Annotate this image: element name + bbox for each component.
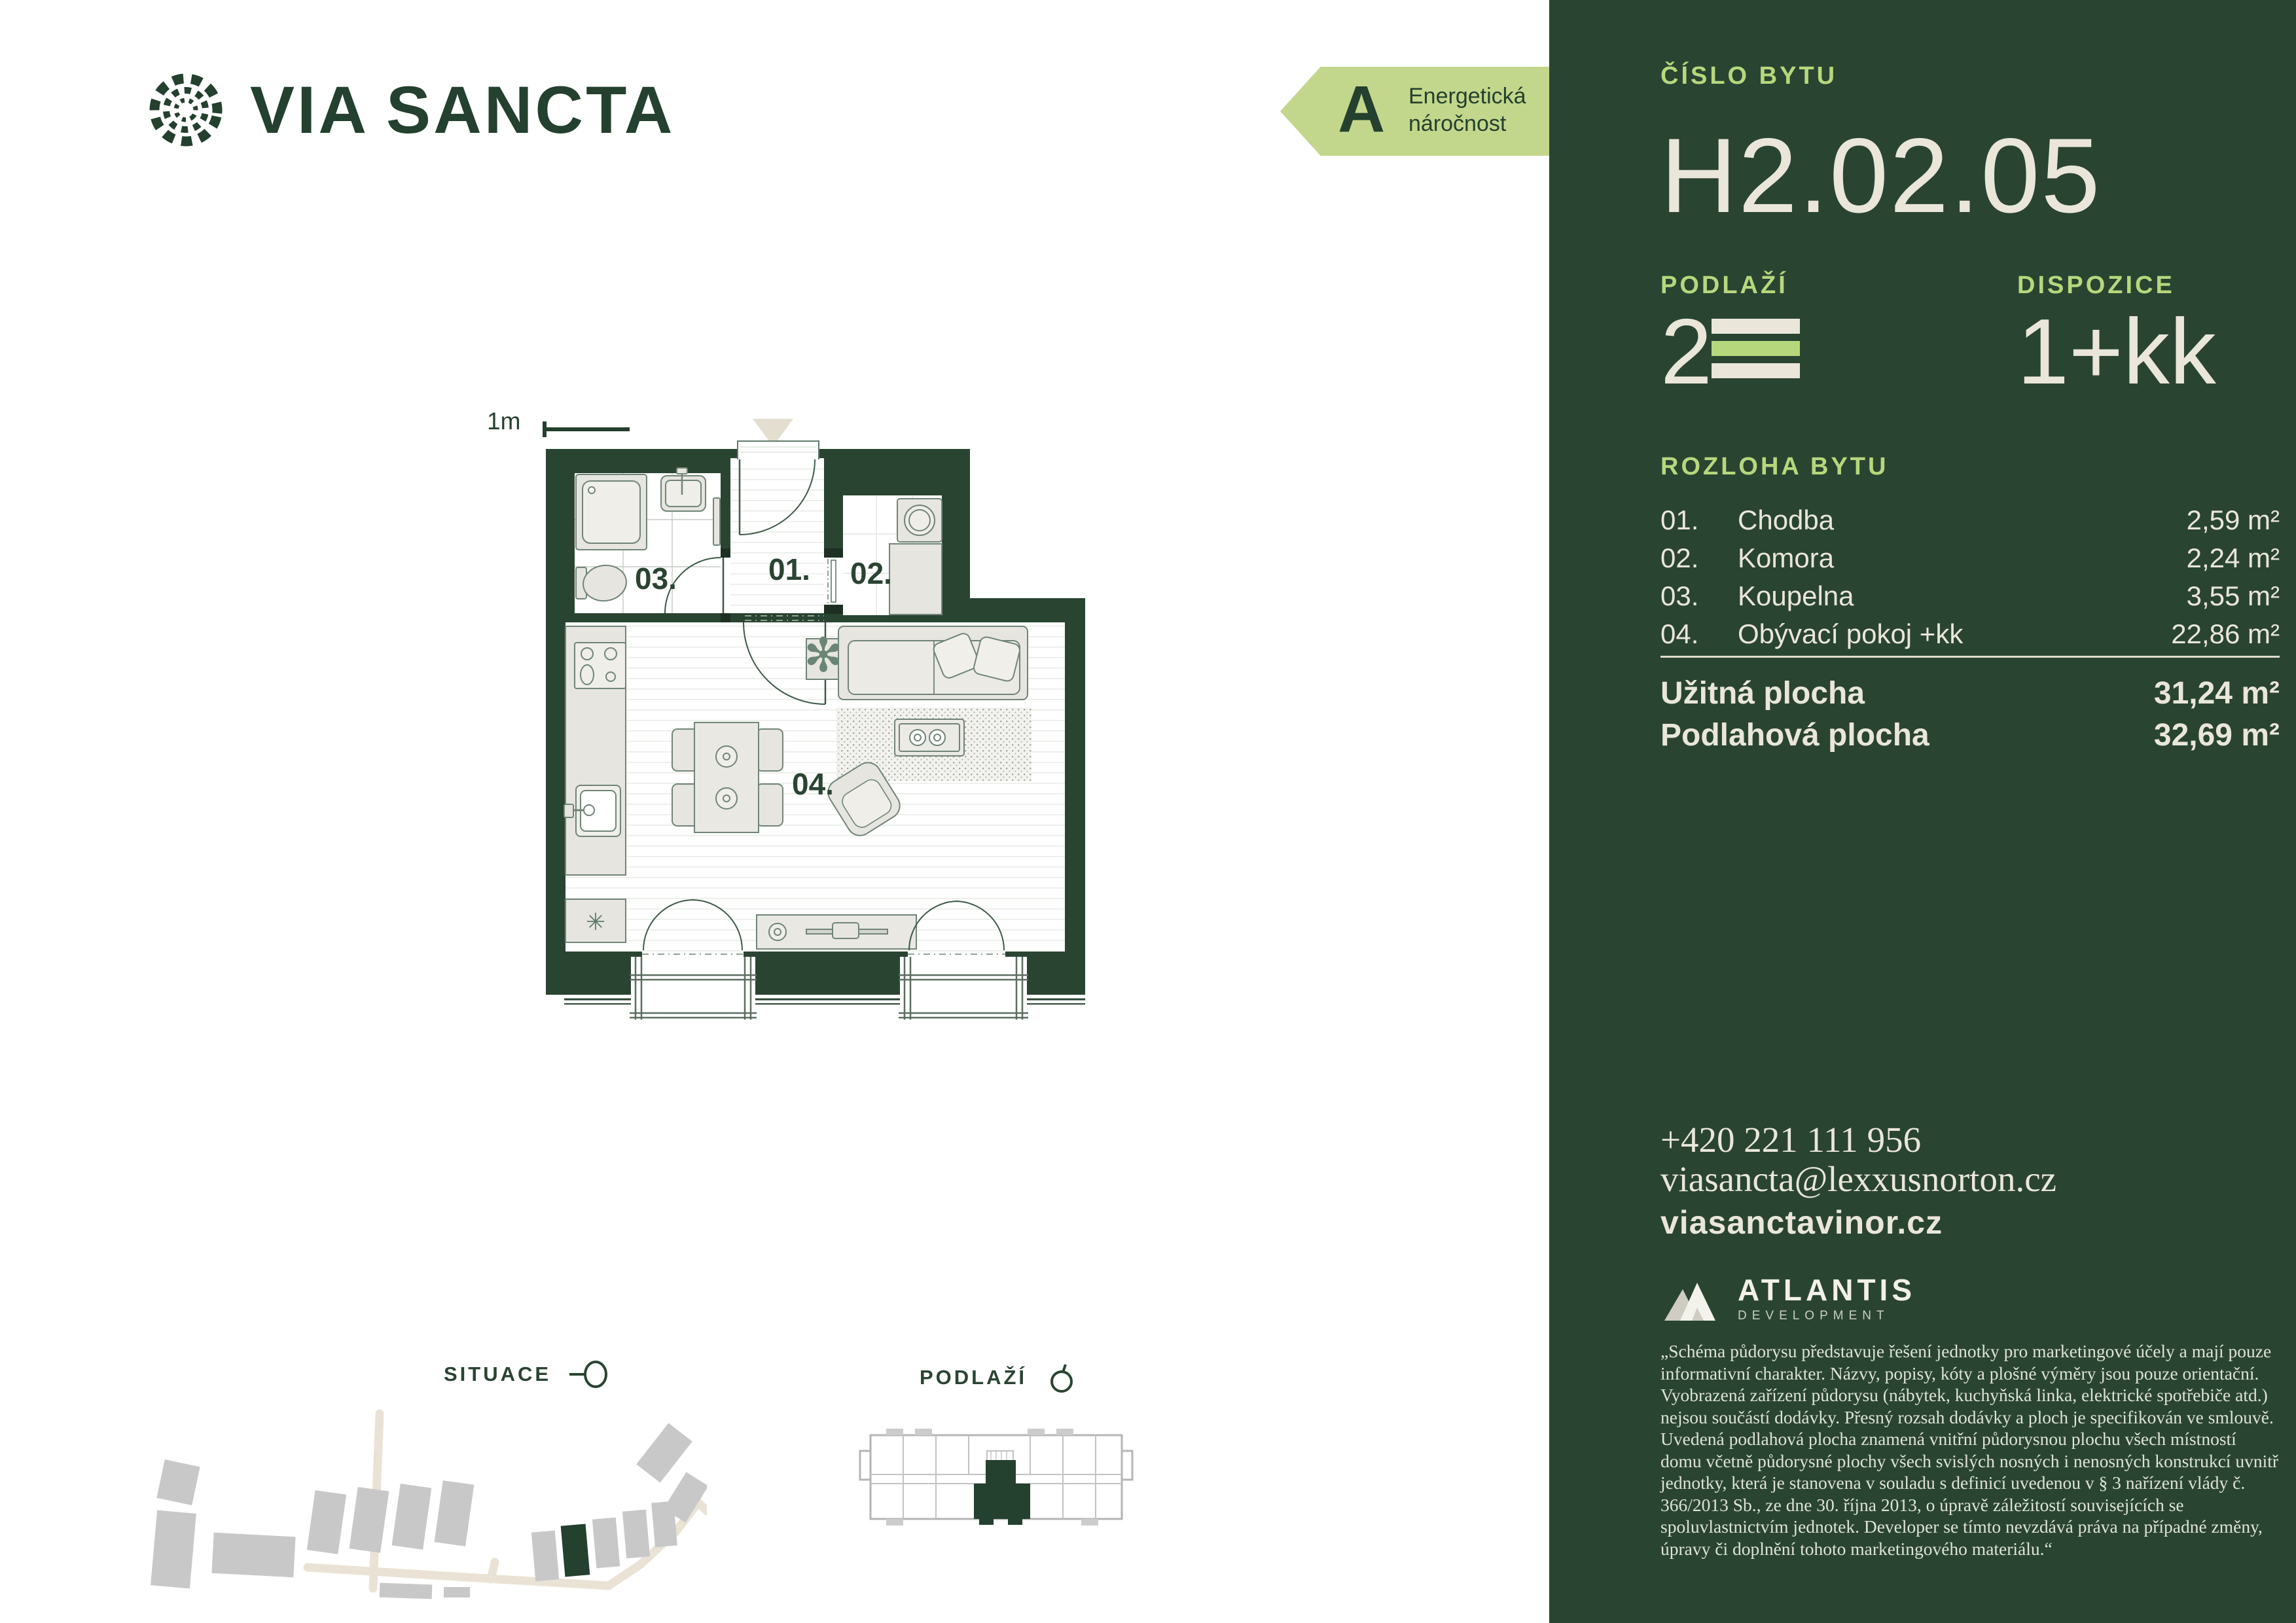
table-row: 02. Komora 2,24 m² [1660, 536, 2280, 574]
energy-badge: A Energetická náročnost [1280, 67, 1549, 156]
usable-area-row: Užitná plocha 31,24 m² [1660, 675, 2280, 711]
unit-number-label: ČÍSLO BYTU [1660, 62, 2280, 90]
room-label-hall: 01. [768, 552, 810, 586]
layout-label: DISPOZICE [2017, 272, 2175, 300]
room-name: Obývací pokoj +kk [1738, 618, 2171, 650]
room-num: 02. [1660, 543, 1738, 574]
developer-logo: ATLANTIS DEVELOPMENT [1660, 1275, 2280, 1323]
developer-sub: DEVELOPMENT [1738, 1309, 1916, 1323]
podlazi-map [859, 1410, 1134, 1548]
compass-west-icon [568, 1360, 609, 1389]
floor-dispo-row: PODLAŽÍ 2 DISPOZICE 1+kk [1660, 272, 2280, 442]
brand-logo-icon [147, 71, 225, 149]
situace-title: SITUACE [444, 1363, 551, 1386]
scale-label: 1m [487, 408, 520, 435]
scale-bar: 1m [487, 408, 630, 437]
room-name: Chodba [1738, 505, 2187, 536]
room-label-bathroom: 03. [635, 562, 677, 596]
usable-area-label: Užitná plocha [1660, 675, 1865, 711]
email-link[interactable]: viasancta@lexxusnorton.cz [1660, 1160, 2280, 1199]
developer-name: ATLANTIS [1738, 1275, 1916, 1305]
tv-console [757, 915, 916, 949]
table-row: 04. Obývací pokoj +kk 22,86 m² [1660, 612, 2280, 650]
floor-level-icon [1712, 319, 1800, 385]
coffee-table [895, 719, 964, 756]
highlighted-unit [974, 1460, 1030, 1525]
floor-label: PODLAŽÍ [1660, 272, 1788, 299]
contact-block: +420 221 111 956 viasancta@lexxusnorton.… [1660, 1120, 2280, 1242]
room-num: 01. [1660, 505, 1738, 536]
room-name: Koupelna [1738, 580, 2187, 612]
energy-label-line2: náročnost [1408, 110, 1526, 137]
website-link[interactable]: viasanctavinor.cz [1660, 1203, 2280, 1242]
compass-north-icon [1047, 1360, 1077, 1395]
divider [1660, 656, 2280, 658]
floor-area-row: Podlahová plocha 32,69 m² [1660, 717, 2280, 753]
situace-map [151, 1404, 707, 1600]
room-num: 03. [1660, 580, 1738, 612]
phone-link[interactable]: +420 221 111 956 [1660, 1120, 2280, 1160]
situace-header: SITUACE [444, 1360, 609, 1389]
energy-label: Energetická náročnost [1408, 82, 1526, 137]
room-area: 3,55 m² [2187, 580, 2280, 612]
floor-area-value: 32,69 m² [2154, 717, 2280, 753]
brand-sancta: SANCTA [386, 73, 675, 147]
brochure-page: VIASANCTA A Energetická náročnost 1m [0, 0, 2296, 1623]
room-area-table: ROZLOHA BYTU 01. Chodba 2,59 m² 02. Komo… [1660, 453, 2280, 650]
table-row: 01. Chodba 2,59 m² [1660, 498, 2280, 536]
room-label-living: 04. [792, 767, 834, 801]
floor-value: 2 [1660, 306, 1712, 399]
legal-disclaimer: „Schéma půdorysu představuje řešení jedn… [1660, 1340, 2280, 1560]
energy-label-line1: Energetická [1408, 82, 1526, 110]
room-name: Komora [1738, 543, 2187, 574]
floor-area-label: Podlahová plocha [1660, 717, 1929, 753]
room-area: 2,24 m² [2187, 543, 2280, 574]
info-panel: ČÍSLO BYTU H2.02.05 PODLAŽÍ 2 DISPOZICE … [1549, 0, 2296, 1623]
layout-value: 1+kk [2017, 306, 2216, 399]
storage-cabinet [889, 544, 942, 615]
brand-logo: VIASANCTA [147, 71, 675, 149]
podlazi-header: PODLAŽÍ [920, 1360, 1077, 1395]
radiator [713, 498, 720, 545]
area-table-label: ROZLOHA BYTU [1660, 453, 2280, 481]
highlighted-building [561, 1524, 590, 1577]
hallway-floor [730, 458, 824, 613]
usable-area-value: 31,24 m² [2154, 675, 2280, 711]
room-label-storage: 02. [850, 556, 892, 590]
atlantis-mountain-icon [1660, 1275, 1723, 1323]
sofa [838, 626, 1028, 700]
room-area: 2,59 m² [2187, 505, 2280, 536]
brand-name: VIASANCTA [250, 72, 675, 149]
brand-via: VIA [250, 73, 369, 147]
room-num: 04. [1660, 618, 1738, 650]
unit-number: H2.02.05 [1660, 123, 2280, 229]
appliance-symbol-icon: ✳ [586, 908, 605, 935]
floorplan: 1m [484, 397, 1122, 1028]
podlazi-title: PODLAŽÍ [920, 1366, 1027, 1389]
plant-icon: ✻ [804, 630, 843, 682]
table-row: 03. Koupelna 3,55 m² [1660, 574, 2280, 612]
plant: ✻ [804, 630, 843, 682]
energy-grade: A [1338, 72, 1385, 147]
room-area: 22,86 m² [2171, 618, 2280, 650]
